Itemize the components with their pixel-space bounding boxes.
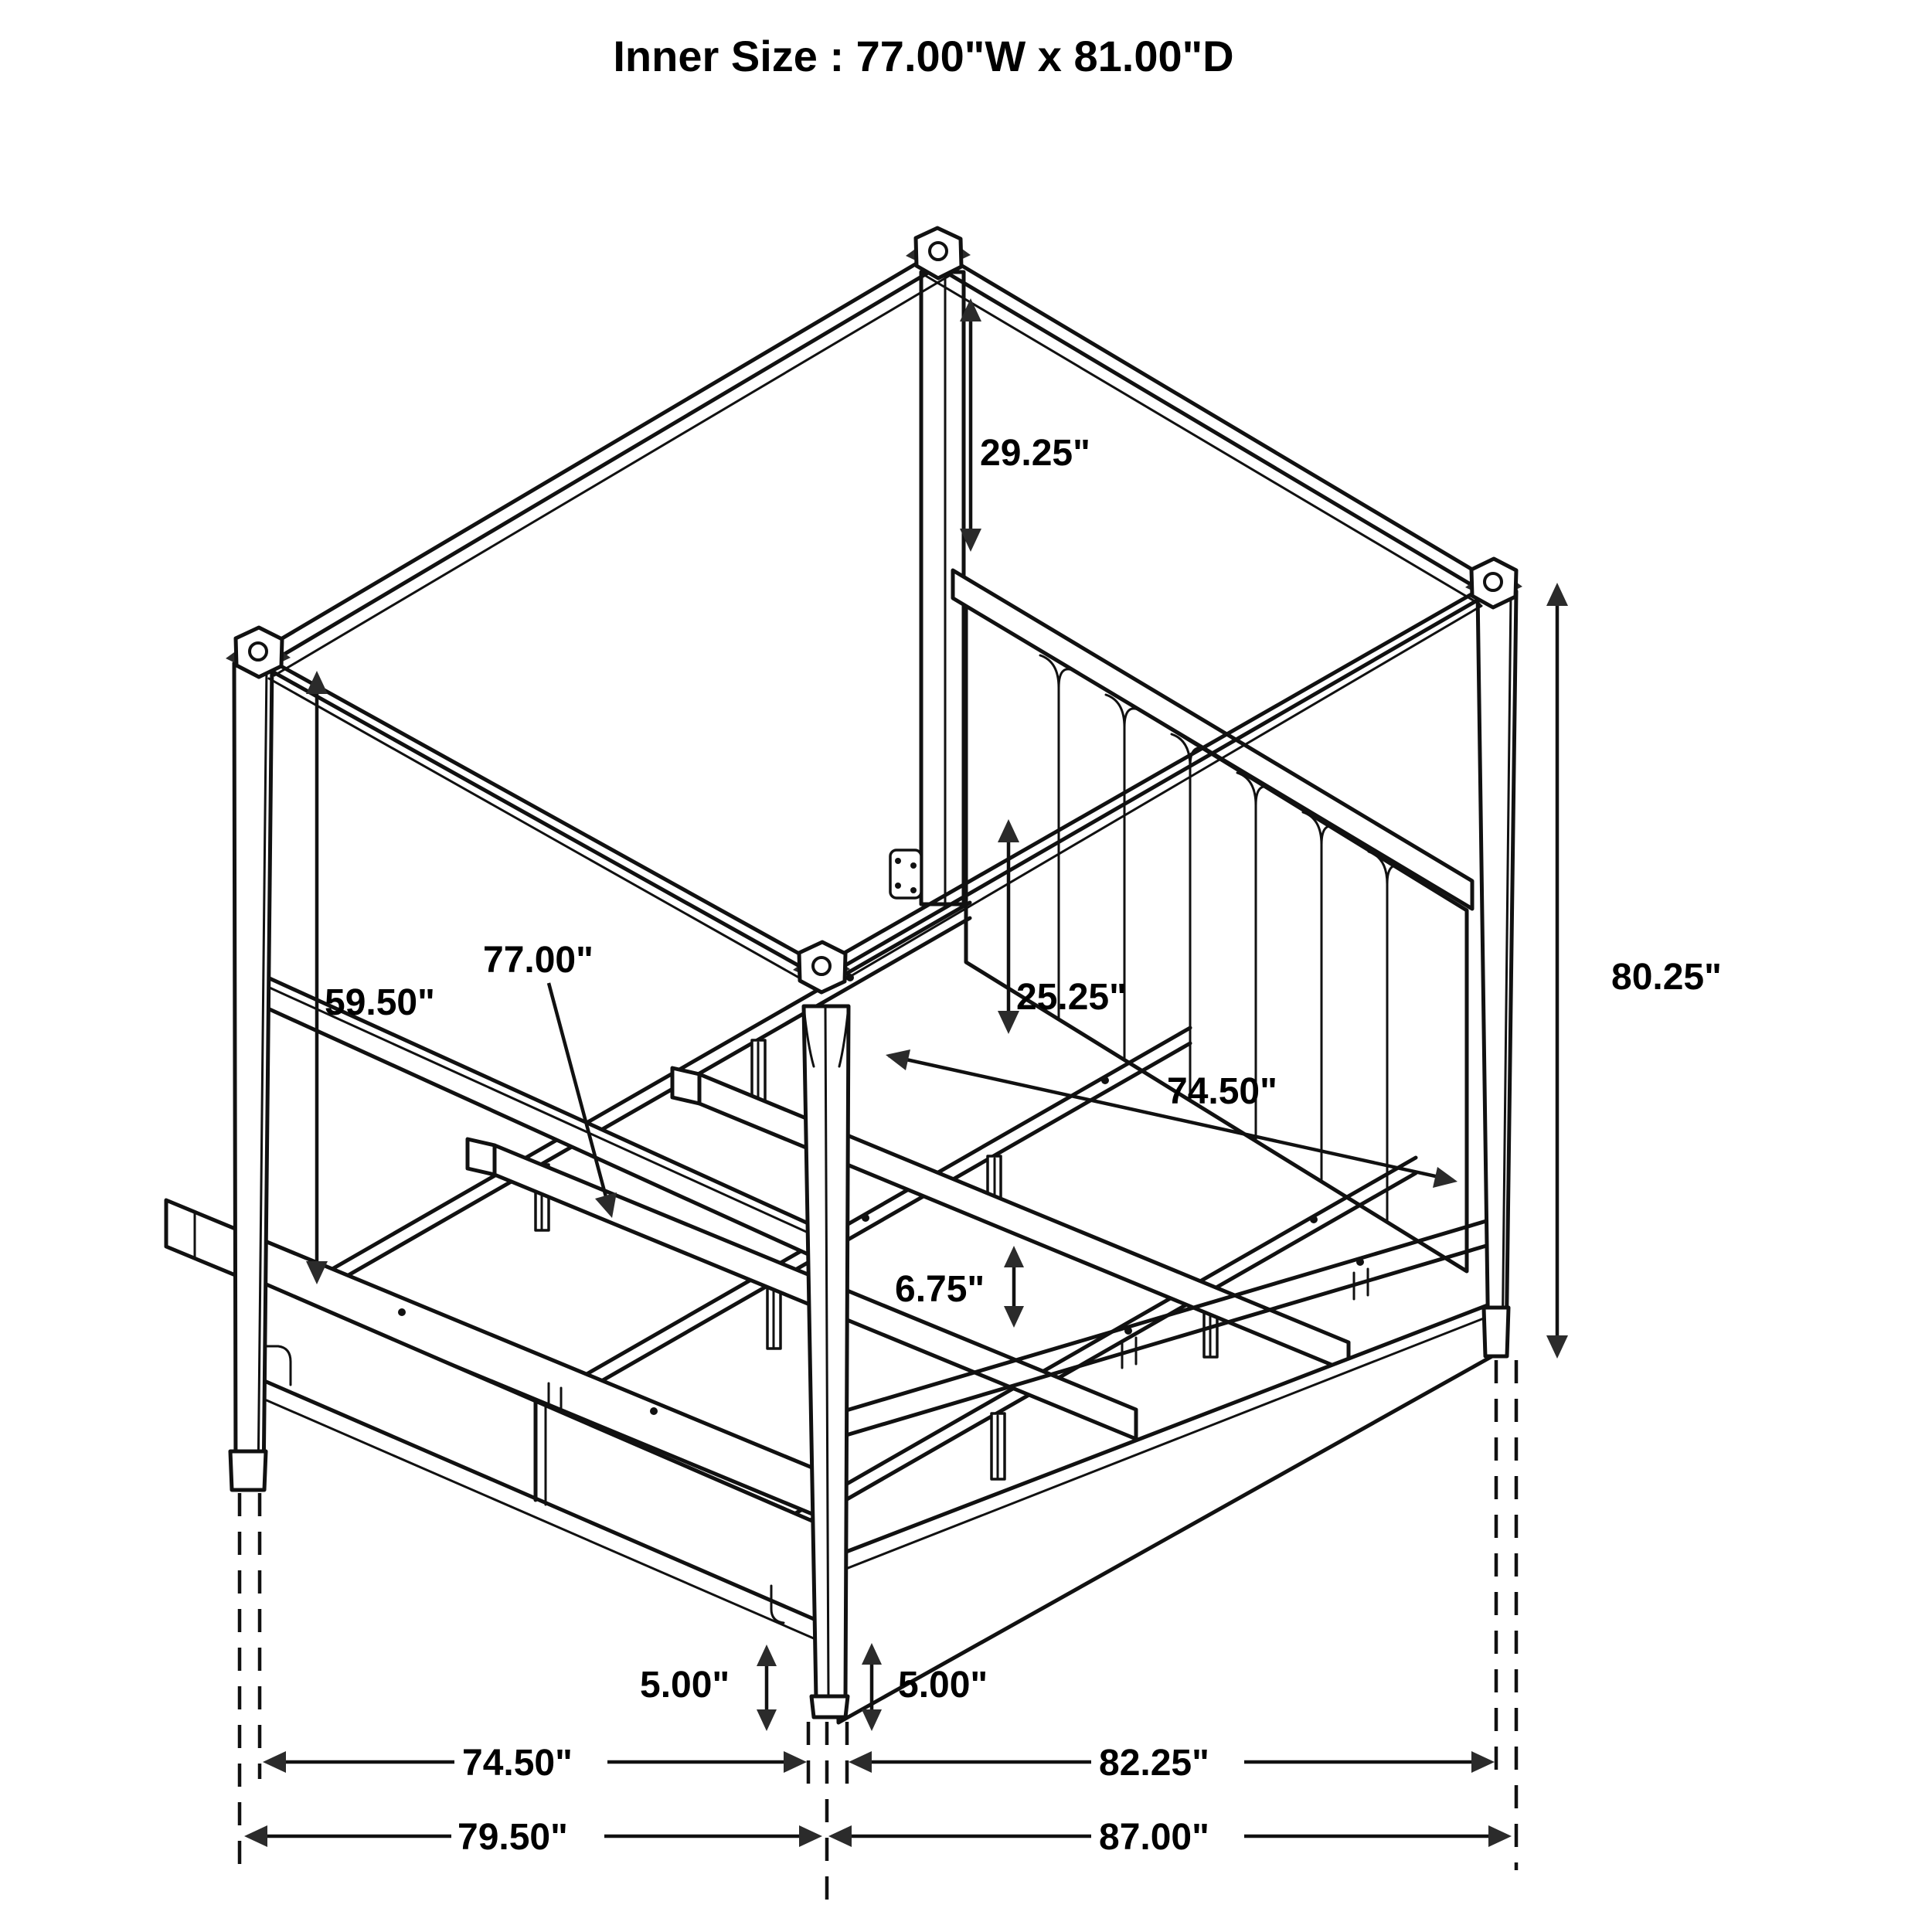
dim-label-5-00-left: 5.00" [640, 1665, 730, 1706]
dim-label-5-00-right: 5.00" [898, 1665, 988, 1706]
right-post [1478, 591, 1516, 1356]
dim-label-79-50: 79.50" [457, 1817, 568, 1858]
dim-label-87-00: 87.00" [1099, 1817, 1209, 1858]
left-post [230, 663, 272, 1490]
dim-label-74-50-bottom: 74.50" [462, 1743, 573, 1784]
dim-leg-height: 6.75" [895, 1246, 1024, 1328]
right-side-rail-panel [836, 1304, 1498, 1723]
mounting-bracket-plate [890, 850, 921, 898]
dim-label-77-00: 77.00" [483, 940, 594, 981]
dim-label-80-25: 80.25" [1611, 957, 1722, 998]
dim-label-6-75: 6.75" [895, 1269, 985, 1310]
dim-overall-depth: 87.00" [828, 1817, 1512, 1858]
dim-overall-width: 79.50" [244, 1817, 822, 1858]
bed-dimension-diagram-page: 29.25" 59.50" 77.00" 25.25" 74.50" 6.75" [0, 0, 1932, 1932]
dim-label-29-25: 29.25" [980, 433, 1090, 474]
dim-label-59-50: 59.50" [325, 982, 435, 1023]
dim-left-post-width: 5.00" [640, 1645, 777, 1731]
dim-canopy-to-rail: 59.50" [306, 671, 435, 1284]
dim-inner-width-bottom: 74.50" [263, 1743, 807, 1784]
dim-label-25-25: 25.25" [1016, 977, 1127, 1018]
canopy-corner-near [793, 942, 850, 992]
bed-diagram: 29.25" 59.50" 77.00" 25.25" 74.50" 6.75" [0, 0, 1932, 1932]
dim-post-above-headboard: 29.25" [960, 298, 1090, 552]
dim-label-82-25: 82.25" [1099, 1743, 1209, 1784]
dim-overall-height: 80.25" [1546, 583, 1722, 1359]
dim-label-74-50-mid: 74.50" [1167, 1071, 1277, 1112]
dim-inner-depth-bottom: 82.25" [849, 1743, 1495, 1784]
diagram-title: Inner Size : 77.00"W x 81.00"D [613, 32, 1233, 80]
